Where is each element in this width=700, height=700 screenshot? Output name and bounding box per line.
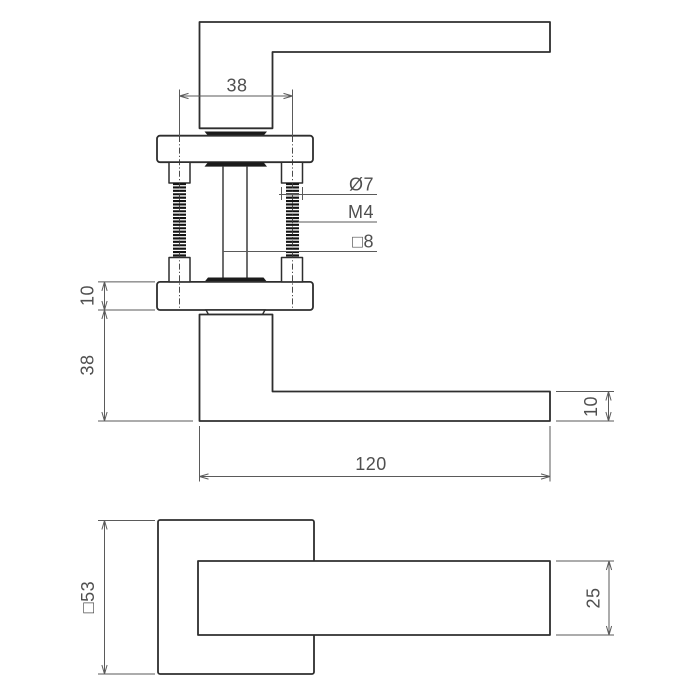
- thread-label: M4: [348, 202, 374, 222]
- rosette-thickness-label: 10: [78, 285, 98, 306]
- front-lever-outline: [200, 315, 551, 422]
- drawing-page: 38 Ø7 M4 □8 10 38 10 120: [0, 0, 700, 700]
- lever-length-label: 120: [355, 454, 387, 474]
- upper-rosette-plate: [157, 136, 313, 163]
- lower-rosette-plate: [157, 282, 313, 310]
- neck-height-label: 38: [78, 354, 98, 375]
- right-lower-standoff: [282, 258, 303, 282]
- lever-thickness-label: 10: [581, 396, 601, 417]
- lever-bar: [198, 561, 550, 635]
- spindle-label: □8: [352, 232, 374, 252]
- right-upper-standoff: [282, 162, 303, 183]
- standoff-dia-label: Ø7: [349, 175, 374, 195]
- front-view: [158, 520, 550, 674]
- back-lever-outline: [200, 22, 551, 128]
- upper-plate-underseat: [205, 162, 268, 166]
- rosette-size-label: □53: [78, 581, 98, 613]
- hole-spacing-label: 38: [226, 76, 247, 96]
- technical-drawing-canvas: 38 Ø7 M4 □8 10 38 10 120: [0, 0, 700, 700]
- lever-width-label: 25: [584, 587, 604, 608]
